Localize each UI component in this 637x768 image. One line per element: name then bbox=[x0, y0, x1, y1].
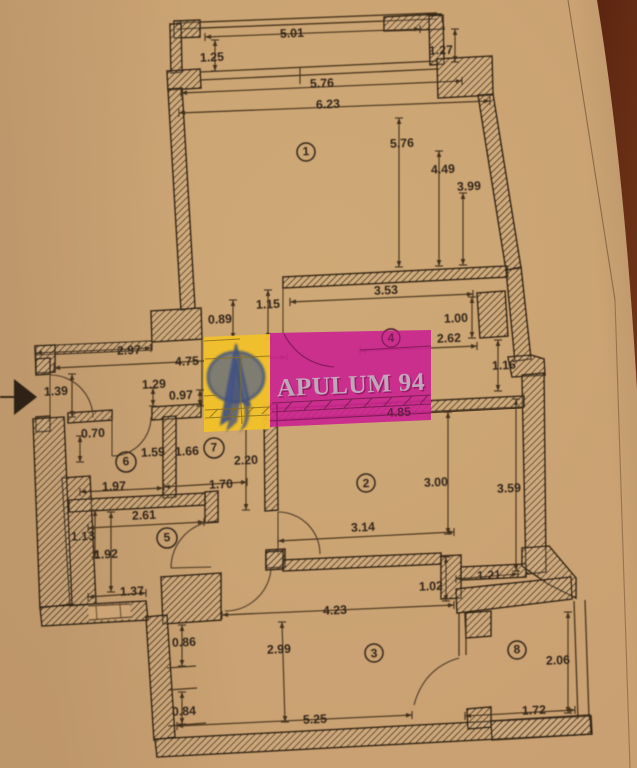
svg-text:1.02: 1.02 bbox=[419, 579, 444, 594]
svg-text:2.62: 2.62 bbox=[437, 331, 462, 346]
svg-text:5: 5 bbox=[163, 530, 171, 544]
svg-text:3.99: 3.99 bbox=[457, 179, 482, 194]
svg-text:1.13: 1.13 bbox=[71, 529, 96, 544]
svg-text:1.39: 1.39 bbox=[44, 384, 69, 399]
svg-text:2.20: 2.20 bbox=[234, 453, 259, 468]
svg-text:0.86: 0.86 bbox=[172, 635, 197, 650]
svg-text:3.00: 3.00 bbox=[424, 475, 449, 490]
svg-text:1.37: 1.37 bbox=[120, 584, 145, 599]
svg-text:0.70: 0.70 bbox=[81, 426, 106, 441]
svg-text:1.15: 1.15 bbox=[256, 297, 281, 312]
svg-text:0.97: 0.97 bbox=[169, 388, 194, 403]
svg-text:1.97: 1.97 bbox=[102, 479, 127, 494]
svg-text:5.76: 5.76 bbox=[390, 136, 415, 151]
svg-text:1.27: 1.27 bbox=[429, 43, 454, 58]
svg-text:1.70: 1.70 bbox=[209, 477, 234, 492]
svg-text:2.06: 2.06 bbox=[546, 653, 571, 668]
svg-text:8: 8 bbox=[513, 642, 521, 656]
svg-text:1.59: 1.59 bbox=[141, 445, 166, 460]
svg-text:0.89: 0.89 bbox=[208, 312, 233, 327]
svg-text:6: 6 bbox=[122, 454, 130, 468]
svg-text:6.23: 6.23 bbox=[316, 97, 341, 112]
svg-text:4.75: 4.75 bbox=[175, 354, 200, 369]
svg-text:1.66: 1.66 bbox=[175, 444, 200, 459]
svg-text:2: 2 bbox=[362, 476, 370, 490]
svg-text:5.76: 5.76 bbox=[310, 76, 335, 91]
svg-text:3: 3 bbox=[370, 646, 378, 660]
svg-text:4.49: 4.49 bbox=[431, 162, 456, 177]
svg-text:3.14: 3.14 bbox=[351, 520, 376, 535]
svg-text:1.25: 1.25 bbox=[200, 50, 225, 65]
svg-text:7: 7 bbox=[210, 440, 218, 454]
svg-text:0.84: 0.84 bbox=[172, 704, 197, 719]
svg-text:4.85: 4.85 bbox=[387, 405, 412, 420]
svg-text:1.72: 1.72 bbox=[522, 703, 547, 718]
svg-text:1.16: 1.16 bbox=[492, 358, 517, 373]
svg-text:5.01: 5.01 bbox=[280, 26, 305, 41]
svg-text:1.00: 1.00 bbox=[444, 311, 469, 326]
svg-text:3.53: 3.53 bbox=[374, 283, 399, 298]
svg-text:4: 4 bbox=[388, 331, 395, 345]
svg-text:4.23: 4.23 bbox=[323, 603, 348, 618]
svg-text:5.25: 5.25 bbox=[303, 712, 328, 727]
svg-text:2.97: 2.97 bbox=[117, 343, 142, 358]
svg-text:1.21: 1.21 bbox=[477, 568, 502, 583]
svg-text:3.59: 3.59 bbox=[497, 481, 522, 496]
svg-text:2.99: 2.99 bbox=[267, 642, 292, 657]
svg-text:1.29: 1.29 bbox=[142, 377, 167, 392]
svg-text:2.61: 2.61 bbox=[132, 508, 157, 523]
svg-text:1.92: 1.92 bbox=[94, 547, 119, 562]
svg-text:1: 1 bbox=[302, 144, 310, 158]
